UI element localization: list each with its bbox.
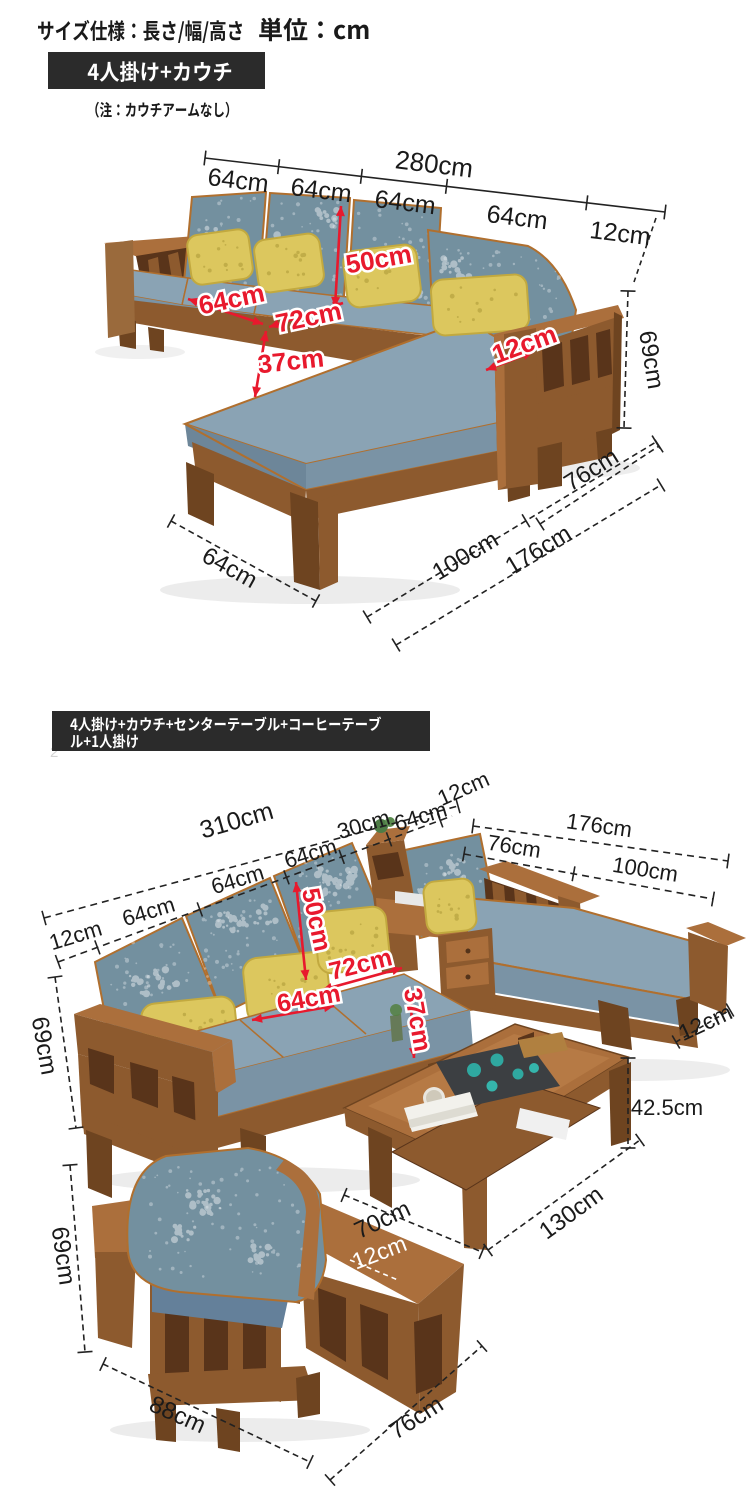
svg-text:42.5cm: 42.5cm [631,1095,703,1120]
